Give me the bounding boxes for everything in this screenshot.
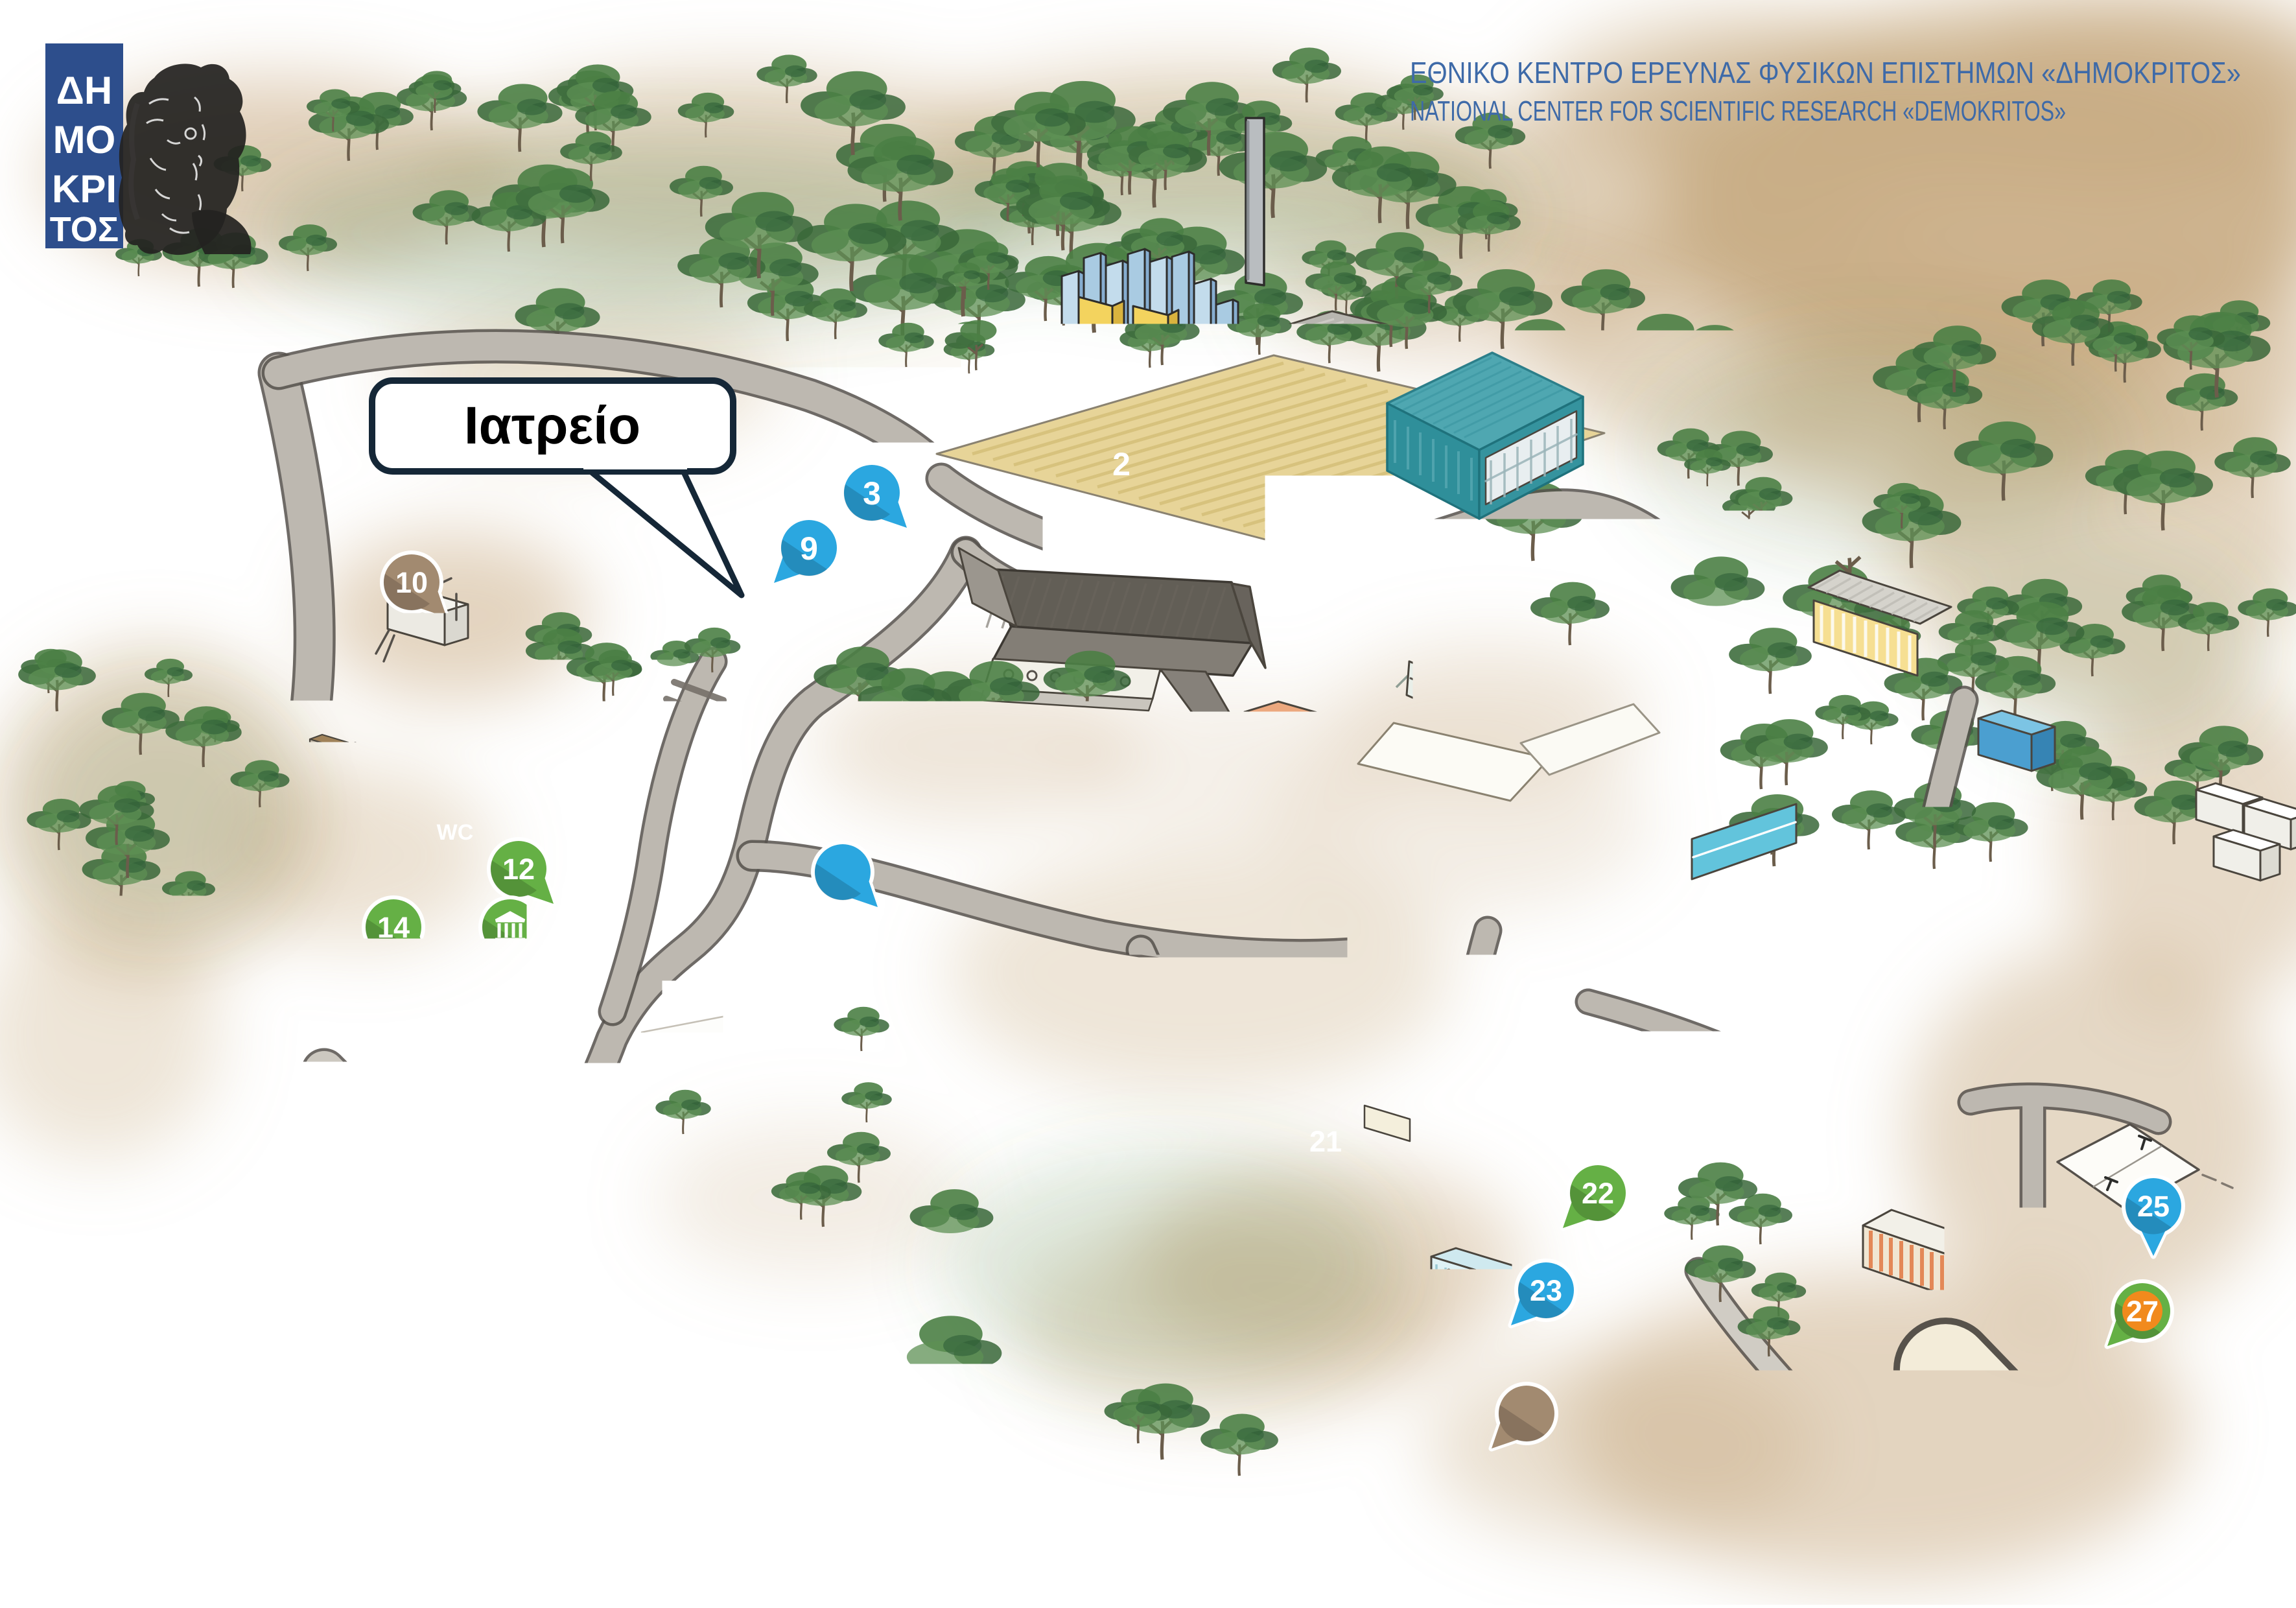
svg-text:14: 14	[377, 911, 410, 944]
svg-text:ΤΟΣ: ΤΟΣ	[50, 210, 119, 249]
svg-text:25: 25	[2137, 1190, 2170, 1223]
svg-text:3: 3	[863, 475, 881, 512]
svg-text:2: 2	[1112, 446, 1130, 482]
svg-text:11: 11	[513, 712, 545, 745]
svg-text:5: 5	[1431, 589, 1449, 625]
svg-text:NATIONAL CENTER FOR SCIENTIFIC: NATIONAL CENTER FOR SCIENTIFIC RESEARCH …	[1410, 95, 2066, 127]
svg-text:ΜΟ: ΜΟ	[53, 118, 116, 161]
svg-text:12: 12	[502, 853, 535, 886]
svg-text:ΕΘΝΙΚΟ ΚΕΝΤΡΟ ΕΡΕΥΝΑΣ ΦΥΣΙΚΩΝ: ΕΘΝΙΚΟ ΚΕΝΤΡΟ ΕΡΕΥΝΑΣ ΦΥΣΙΚΩΝ ΕΠΙΣΤΗΜΩΝ …	[1410, 56, 2241, 89]
svg-text:22: 22	[1582, 1177, 1614, 1210]
svg-text:29: 29	[1251, 671, 1283, 704]
svg-text:19: 19	[992, 990, 1025, 1023]
svg-text:21: 21	[1309, 1125, 1342, 1158]
svg-text:23: 23	[1530, 1274, 1562, 1307]
svg-text:WC: WC	[437, 820, 474, 845]
svg-text:15: 15	[883, 780, 915, 813]
svg-text:10: 10	[395, 566, 428, 599]
svg-text:9: 9	[800, 530, 818, 567]
svg-text:6: 6	[1054, 562, 1072, 598]
svg-text:27: 27	[2126, 1295, 2159, 1328]
svg-text:8: 8	[1145, 754, 1163, 790]
svg-text:Ιατρείο: Ιατρείο	[464, 396, 640, 455]
svg-text:7: 7	[1485, 737, 1503, 773]
svg-text:1: 1	[633, 1085, 651, 1121]
svg-text:17: 17	[1024, 349, 1056, 382]
svg-text:17: 17	[1439, 319, 1471, 352]
svg-text:P: P	[600, 951, 632, 1005]
svg-text:P: P	[633, 628, 662, 676]
svg-text:26: 26	[1491, 822, 1523, 855]
svg-text:28: 28	[1424, 910, 1457, 943]
svg-text:ΚΡΙ: ΚΡΙ	[52, 167, 117, 211]
svg-text:16: 16	[826, 856, 859, 889]
svg-text:20: 20	[1885, 995, 1917, 1028]
svg-text:24: 24	[1510, 1397, 1543, 1430]
svg-text:4: 4	[1814, 602, 1833, 639]
svg-text:ΔΗ: ΔΗ	[56, 69, 112, 112]
svg-text:Γραφείο ΥΥΑΕ: Γραφείο ΥΥΑΕ	[788, 1112, 1132, 1169]
